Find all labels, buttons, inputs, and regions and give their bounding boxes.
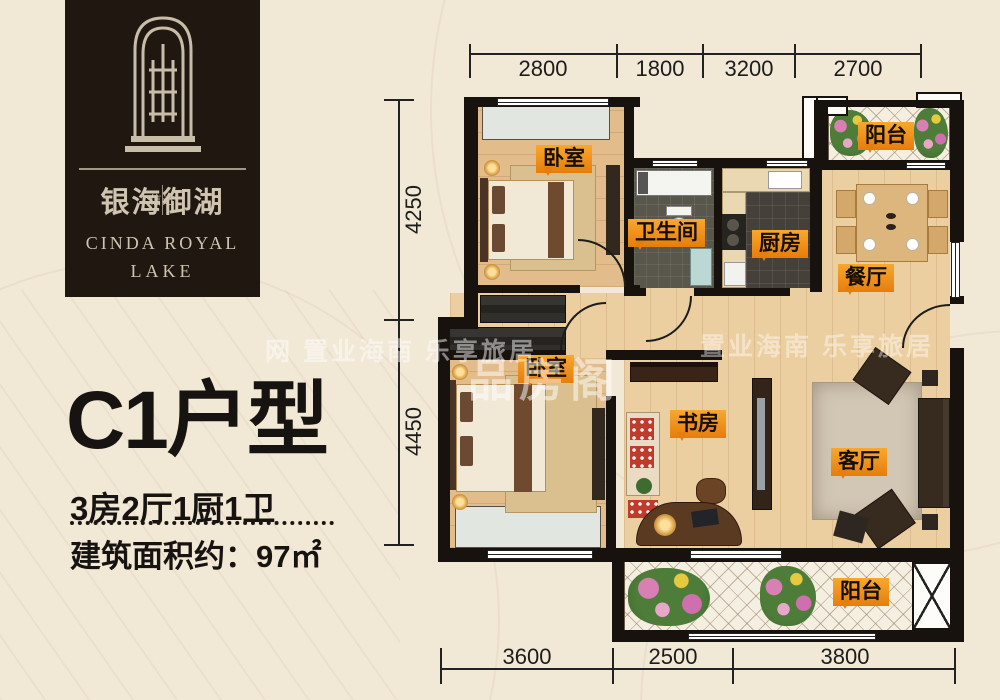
wall xyxy=(950,348,964,562)
dim-top-2: 1800 xyxy=(622,56,698,82)
dim-tick xyxy=(794,44,796,78)
dining-chair xyxy=(928,190,948,218)
plant-pot xyxy=(636,478,652,494)
dining-chair xyxy=(928,226,948,254)
brand-logo-block: 信达 银海御湖 CINDA ROYAL LAKE xyxy=(65,0,260,297)
dim-bottom-2: 2500 xyxy=(635,644,711,670)
wall xyxy=(810,158,822,292)
watermark-logo: 品房阁 xyxy=(468,344,621,409)
sofa-cushion xyxy=(630,446,654,468)
fridge xyxy=(724,262,746,286)
table-centerpiece xyxy=(886,213,896,219)
wall xyxy=(694,288,790,296)
room-label-balcony-north: 阳台 xyxy=(858,122,914,150)
wall xyxy=(624,288,646,296)
brand-name: 银海御湖 xyxy=(100,179,224,221)
brand-name-en-line1: CINDA ROYAL xyxy=(65,233,260,254)
dim-tick xyxy=(469,44,471,78)
wall xyxy=(714,168,722,292)
bed-pillow xyxy=(492,224,505,252)
dim-tick xyxy=(616,44,618,78)
window-kitchen xyxy=(766,160,808,167)
window-bedroom-1 xyxy=(497,98,609,106)
dim-top-1: 2800 xyxy=(505,56,581,82)
wall xyxy=(624,97,634,293)
side-table xyxy=(922,514,938,530)
plan-title: C1户型 xyxy=(66,380,396,462)
door-balcony-north xyxy=(906,162,946,169)
dim-top-4: 2700 xyxy=(820,56,896,82)
room-label-balcony-south: 阳台 xyxy=(833,578,889,606)
stove-burner xyxy=(727,219,739,231)
room-label-dining: 餐厅 xyxy=(838,264,894,292)
logo-divider xyxy=(79,168,246,170)
bathtub-pillow xyxy=(638,172,648,194)
wall xyxy=(826,100,956,107)
dim-left-1: 4250 xyxy=(401,150,435,270)
door-balcony-south xyxy=(690,550,782,559)
plate xyxy=(863,238,876,251)
wall xyxy=(950,562,964,642)
ac-platform-box xyxy=(912,562,952,630)
balcony-plants xyxy=(760,566,816,626)
window-bedroom-2 xyxy=(487,550,593,559)
dim-tick xyxy=(732,648,734,684)
window-dining xyxy=(951,242,960,298)
side-table xyxy=(922,370,938,386)
dim-tick xyxy=(612,648,614,684)
desk-chair xyxy=(696,478,726,504)
closet xyxy=(480,295,566,323)
plate xyxy=(863,192,876,205)
plate xyxy=(906,192,919,205)
table-centerpiece xyxy=(886,224,896,230)
bed-pillow xyxy=(460,436,473,466)
desk-lamp xyxy=(654,514,676,536)
dim-line-top xyxy=(470,53,922,55)
dim-left-2: 4450 xyxy=(401,372,435,492)
room-label-living: 客厅 xyxy=(831,448,887,476)
wall xyxy=(606,396,616,550)
room-label-kitchen: 厨房 xyxy=(752,230,808,258)
dim-top-3: 3200 xyxy=(711,56,787,82)
watermark-text-right: 置业海南 乐享旅居 xyxy=(700,327,934,363)
bed-pillow xyxy=(492,186,505,214)
plate xyxy=(906,238,919,251)
dim-tick xyxy=(384,99,414,101)
dining-chair xyxy=(836,190,856,218)
tv-screen xyxy=(757,398,765,490)
dim-line-left xyxy=(398,100,400,545)
room-label-study: 书房 xyxy=(670,410,726,438)
balcony-plants xyxy=(914,108,948,158)
room-label-bedroom-1: 卧室 xyxy=(536,145,592,173)
dim-tick xyxy=(440,648,442,684)
dresser-bedroom-2 xyxy=(592,408,605,500)
bed-headboard xyxy=(480,178,488,262)
dining-chair xyxy=(836,226,856,254)
poster: 信达 银海御湖 CINDA ROYAL LAKE C1户型 3房2厅1厨1卫 建… xyxy=(0,0,1000,700)
window-balcony-south xyxy=(688,633,876,640)
window-bathroom xyxy=(652,160,698,167)
toilet xyxy=(666,206,692,216)
dim-bottom-1: 3600 xyxy=(489,644,565,670)
brand-emblem-icon xyxy=(123,8,203,158)
plan-area: 建筑面积约：97㎡ xyxy=(70,531,321,576)
nightstand-lamp xyxy=(484,160,500,176)
dim-tick xyxy=(384,544,414,546)
wall xyxy=(814,100,828,168)
living-sofa xyxy=(918,398,950,508)
shower-glass xyxy=(690,248,712,286)
stove-burner xyxy=(727,234,739,246)
sofa-cushion xyxy=(630,418,654,440)
dotted-divider xyxy=(70,521,334,525)
bed-runner xyxy=(548,182,564,258)
wall xyxy=(464,285,580,293)
nightstand-lamp xyxy=(452,494,468,510)
kitchen-sink xyxy=(768,171,802,189)
dim-tick xyxy=(954,648,956,684)
nightstand-lamp xyxy=(484,264,500,280)
dim-bottom-3: 3800 xyxy=(807,644,883,670)
wall xyxy=(950,100,964,242)
dim-tick xyxy=(702,44,704,78)
dim-tick xyxy=(920,44,922,78)
balcony-plants xyxy=(628,568,710,626)
brand-name-en-line2: LAKE xyxy=(65,261,260,282)
dresser-bedroom-1 xyxy=(606,165,620,255)
dim-tick xyxy=(384,319,414,321)
wall xyxy=(612,548,624,642)
study-console xyxy=(630,362,718,382)
room-label-bathroom: 卫生间 xyxy=(628,219,705,247)
bay-ledge-bedroom-1 xyxy=(482,106,610,140)
brand-name-cn: 信达 银海御湖 xyxy=(65,178,260,222)
